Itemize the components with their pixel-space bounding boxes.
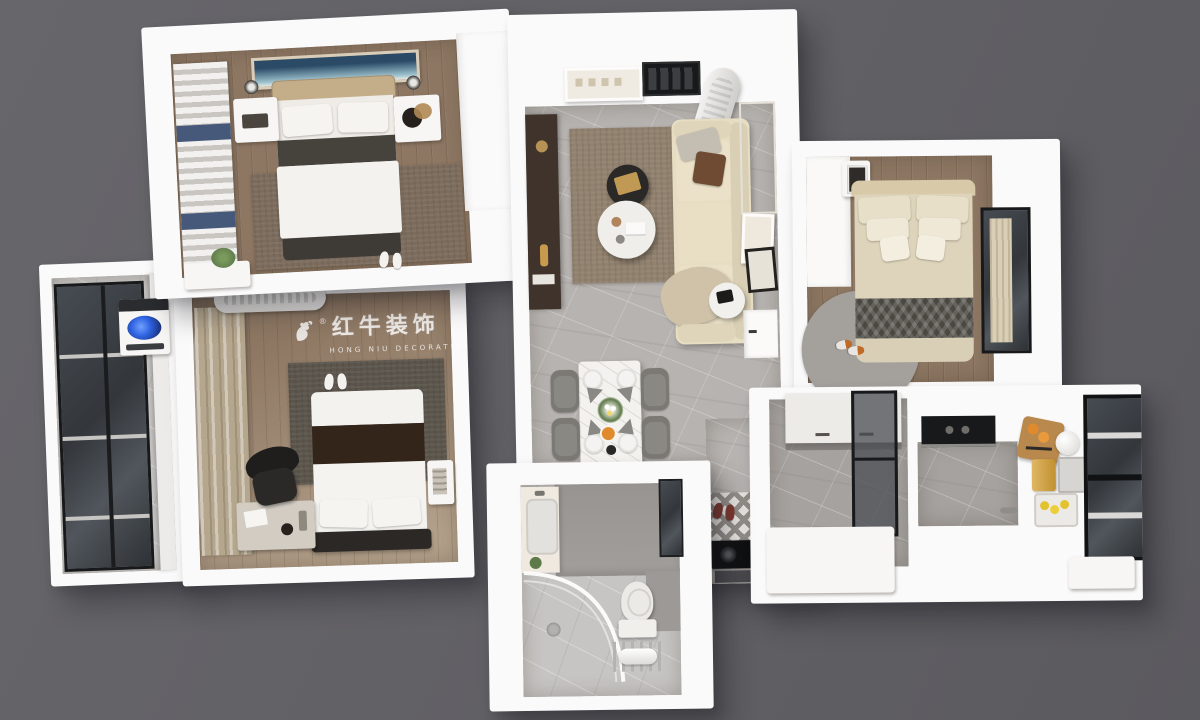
desk-lamp	[281, 523, 293, 535]
room-balcony	[39, 259, 191, 586]
plate	[582, 369, 602, 389]
white-slipper	[393, 253, 402, 269]
chevron-blanket	[855, 298, 973, 339]
towel-roll	[619, 648, 657, 665]
toss-pillow	[879, 234, 910, 262]
pillow	[338, 102, 389, 133]
vent-grid	[648, 67, 694, 90]
dining-chair	[641, 416, 670, 459]
bathroom-window	[659, 479, 684, 557]
double-bed	[274, 75, 401, 261]
small-bowl	[611, 217, 621, 227]
window-curtain	[990, 218, 1013, 342]
red-slipper	[725, 504, 735, 520]
office-chair	[241, 445, 305, 509]
dining-chair	[551, 418, 580, 461]
sink-faucet	[1000, 507, 1018, 513]
door-handle	[749, 330, 757, 333]
room-bathroom	[486, 460, 713, 711]
room-second-bedroom	[792, 139, 1062, 399]
chair-seat	[251, 466, 299, 508]
black-decor	[716, 289, 734, 304]
bed	[854, 180, 974, 363]
room-kitchen	[749, 384, 1143, 603]
burner	[720, 546, 736, 562]
plate	[616, 368, 636, 388]
bed-foot	[856, 338, 974, 363]
bedroom2-window	[980, 207, 1031, 353]
lemon-basket	[1034, 493, 1078, 527]
frame	[744, 247, 778, 294]
plate	[618, 432, 638, 452]
pillow	[372, 496, 422, 528]
island-counter	[766, 526, 895, 593]
dried-plant	[413, 103, 432, 120]
window-bar	[1088, 474, 1142, 480]
desk-item	[299, 511, 308, 531]
room-third-bedroom: ® 红牛装饰 HONG NIU DECORATION	[173, 271, 474, 586]
sink-basin	[526, 499, 559, 555]
leaning-picture-frames	[739, 212, 773, 289]
candle-decor	[540, 244, 548, 266]
tray	[242, 113, 269, 128]
room-master-bedroom	[141, 9, 523, 300]
glass-partition-door	[851, 390, 898, 536]
brown-runner	[312, 423, 425, 464]
napkin	[618, 419, 634, 435]
duvet-top	[311, 389, 424, 427]
tv-cabinet	[525, 114, 561, 310]
washer-top-panel	[118, 298, 168, 312]
lemon	[1050, 505, 1059, 514]
marble-dining-table	[578, 360, 642, 465]
headboard	[311, 529, 432, 553]
washing-machine	[118, 298, 170, 356]
lemon	[1040, 501, 1049, 510]
toilet-seat-line	[627, 588, 651, 616]
lemon	[1060, 500, 1069, 509]
orange	[1037, 431, 1050, 444]
dark-dish	[606, 445, 616, 455]
cushion-brown	[692, 151, 727, 187]
books	[432, 468, 447, 494]
dining-chair	[550, 370, 579, 413]
window-mullion	[62, 434, 146, 441]
orange	[1027, 422, 1040, 435]
small-cup	[616, 235, 625, 244]
toilet	[618, 581, 657, 640]
decor-gold	[536, 140, 548, 152]
window-blinds	[739, 102, 777, 215]
flower-dots	[602, 402, 618, 418]
orange-juice	[602, 427, 615, 440]
hood-button	[945, 426, 953, 434]
range-hood	[921, 416, 995, 448]
ceiling-vent	[642, 61, 701, 96]
dining-chair	[640, 368, 669, 411]
faucet	[535, 491, 545, 496]
plate	[584, 433, 604, 453]
toss-pillow	[915, 234, 946, 261]
gold-canister	[1032, 459, 1056, 491]
duvet	[277, 161, 403, 239]
table-book	[625, 222, 645, 234]
curtain-navy-band	[181, 211, 236, 230]
kettle	[1055, 431, 1079, 455]
window-mullion	[66, 514, 150, 521]
flower-centerpiece	[597, 397, 624, 424]
knife	[1026, 446, 1052, 451]
toilet-tank	[618, 619, 656, 638]
gold-tray	[614, 172, 642, 196]
watermark-brand: 红牛装饰	[332, 314, 441, 339]
washer-control	[126, 343, 164, 350]
hood-button	[961, 426, 969, 434]
curtain-navy-band	[176, 123, 231, 142]
window-sill	[1069, 556, 1135, 589]
brand-watermark: ® 红牛装饰 HONG NIU DECORATION	[291, 313, 473, 356]
washer-drum-glow	[127, 315, 162, 340]
cabinet-handle	[815, 433, 829, 436]
bed	[311, 389, 428, 554]
pillow	[281, 103, 333, 137]
registered-mark: ®	[319, 318, 327, 326]
art-strokes	[575, 78, 627, 87]
sofa-seat	[677, 202, 732, 263]
bull-logo-icon	[291, 318, 318, 345]
wall-art	[564, 66, 643, 102]
kitchen-window	[1083, 394, 1143, 561]
towel-rack	[613, 641, 663, 672]
nightstand-left	[233, 97, 279, 143]
sofa-arm-bottom	[678, 323, 736, 342]
side-table	[427, 460, 454, 505]
window-bar	[1088, 512, 1142, 518]
window-bar	[1087, 432, 1141, 438]
striped-roman-curtain	[173, 61, 238, 278]
partition-crossbar	[855, 457, 895, 460]
pillow	[319, 499, 368, 528]
render-canvas: { "scene": { "kind": "top-down 3D interi…	[0, 0, 1200, 720]
shower-drain	[547, 623, 561, 637]
nightstand-right	[393, 94, 441, 142]
window-divider	[101, 285, 116, 567]
interior-door	[743, 310, 778, 359]
paper	[244, 508, 268, 528]
book-decor	[532, 274, 554, 284]
